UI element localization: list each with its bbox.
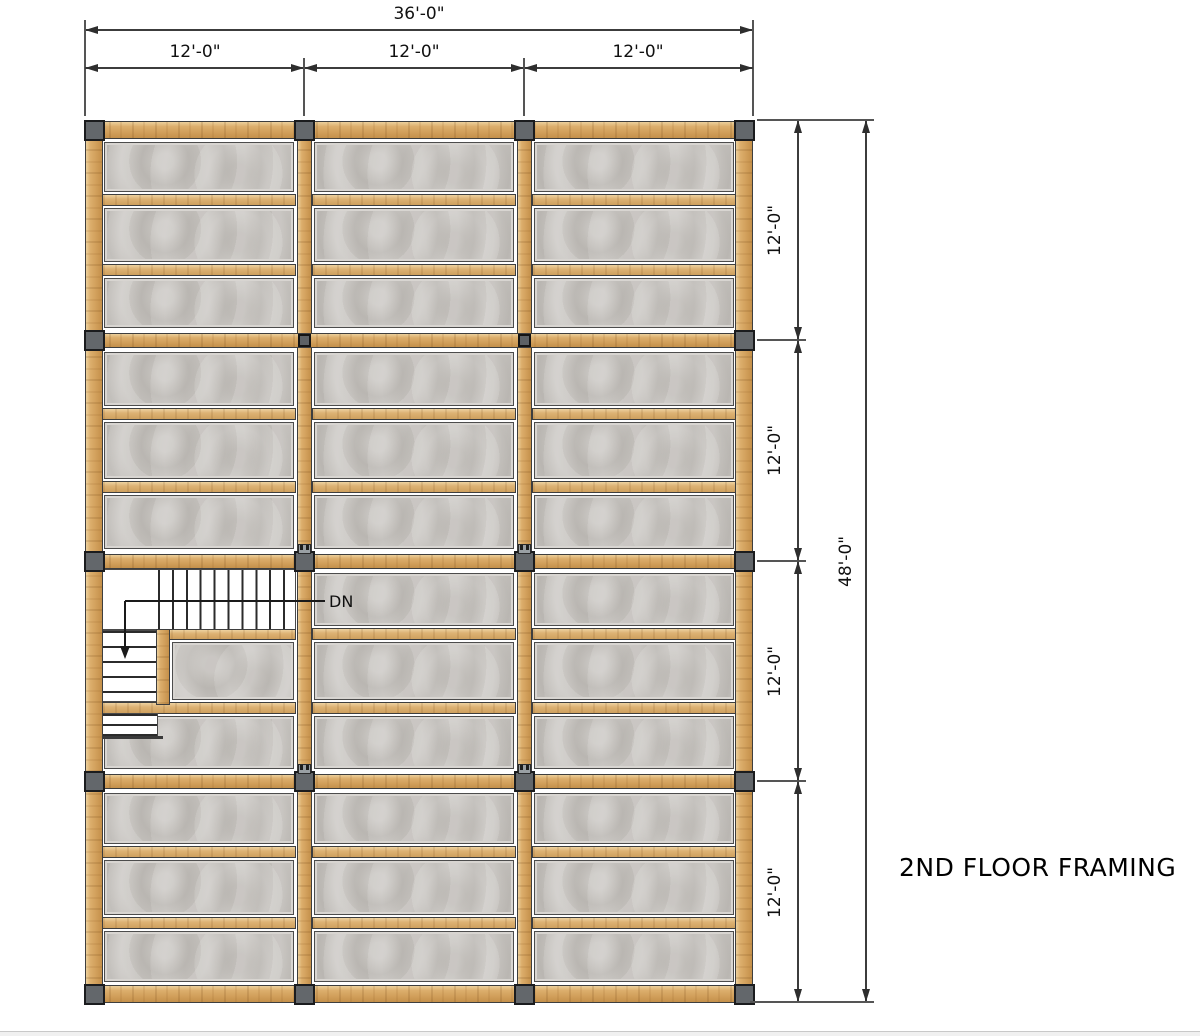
- post-cap-fastener: [306, 545, 309, 550]
- floor-panel: [534, 278, 734, 328]
- dim-bay-height-label-3: 12'-0": [763, 616, 787, 726]
- floor-joist: [312, 481, 516, 493]
- column-post: [84, 120, 105, 141]
- dimension-arrow: [85, 64, 98, 72]
- column-post: [734, 330, 755, 351]
- floor-panel: [314, 142, 514, 192]
- column-post: [84, 551, 105, 572]
- floor-panel: [104, 860, 294, 915]
- stair-walk-line: [124, 601, 126, 646]
- column-post: [294, 120, 315, 141]
- dimension-arrow: [85, 26, 98, 34]
- floor-joist: [532, 481, 736, 493]
- dimension-line: [85, 29, 753, 31]
- floor-joist: [102, 194, 296, 206]
- beam-girder: [85, 774, 753, 789]
- floor-joist: [312, 264, 516, 276]
- floor-panel: [314, 642, 514, 699]
- floor-joist: [532, 702, 736, 714]
- column-post: [514, 120, 535, 141]
- floor-joist: [532, 846, 736, 858]
- post-cap-fastener: [526, 765, 529, 770]
- floor-joist: [312, 702, 516, 714]
- stair-down-arrow: [120, 646, 130, 659]
- floor-panel: [314, 860, 514, 915]
- dimension-line: [85, 67, 753, 69]
- floor-panel: [314, 352, 514, 406]
- dimension-arrow: [862, 120, 870, 133]
- dimension-arrow: [794, 768, 802, 781]
- column-post: [734, 771, 755, 792]
- dimension-arrow: [794, 548, 802, 561]
- column-post: [84, 771, 105, 792]
- floor-panel: [104, 208, 294, 262]
- floor-panel: [104, 142, 294, 192]
- dimension-arrow: [291, 64, 304, 72]
- floor-joist: [532, 628, 736, 640]
- bottom-ui-edge: [0, 1031, 1200, 1036]
- floor-panel: [534, 642, 734, 699]
- dim-bay-width-label-2: 12'-0": [334, 42, 494, 62]
- floor-joist: [102, 702, 296, 714]
- dimension-arrow: [794, 561, 802, 574]
- extension-line: [750, 1001, 874, 1003]
- beam-girder: [85, 554, 753, 569]
- floor-joist: [312, 917, 516, 929]
- floor-panel: [314, 422, 514, 480]
- dim-bay-height-label-4: 12'-0": [763, 837, 787, 947]
- floor-joist: [102, 408, 296, 420]
- floor-joist: [532, 194, 736, 206]
- floor-panel: [172, 642, 294, 699]
- beam-girder: [85, 985, 753, 1003]
- floor-panel: [534, 422, 734, 480]
- floor-panel: [314, 793, 514, 844]
- drawing-title: 2ND FLOOR FRAMING: [899, 853, 1176, 882]
- stair-down-label: DN: [329, 592, 353, 611]
- beam-girder: [85, 333, 753, 348]
- dim-total-height-label: 48'-0": [834, 506, 858, 616]
- floor-joist: [532, 917, 736, 929]
- floor-panel: [534, 573, 734, 626]
- column-post: [734, 120, 755, 141]
- post-cap-fastener: [526, 545, 529, 550]
- floor-panel: [104, 793, 294, 844]
- column-post: [84, 330, 105, 351]
- stair-lower-run: [99, 630, 157, 702]
- floor-joist: [532, 264, 736, 276]
- floor-panel: [534, 208, 734, 262]
- drawing-canvas: 36'-0" 12'-0" 12'-0" 12'-0" 12'-0" 12'-0…: [0, 0, 1200, 1036]
- floor-joist: [102, 917, 296, 929]
- extension-line: [757, 119, 874, 121]
- stair-trimmer-beam: [156, 629, 170, 705]
- stair-stub-run: [99, 713, 158, 737]
- dimension-arrow: [524, 64, 537, 72]
- column-post: [294, 984, 315, 1005]
- post-cap-fastener: [300, 765, 303, 770]
- floor-panel: [534, 495, 734, 549]
- floor-panel: [104, 931, 294, 982]
- floor-panel: [104, 422, 294, 480]
- floor-panel: [104, 352, 294, 406]
- post-cap-fastener: [306, 765, 309, 770]
- dim-bay-width-label-3: 12'-0": [558, 42, 718, 62]
- dimension-arrow: [794, 781, 802, 794]
- floor-panel: [534, 860, 734, 915]
- beam-girder: [85, 121, 753, 139]
- floor-panel: [534, 931, 734, 982]
- floor-panel: [534, 793, 734, 844]
- dim-bay-width-label-1: 12'-0": [115, 42, 275, 62]
- floor-panel: [104, 495, 294, 549]
- dimension-arrow: [740, 64, 753, 72]
- stair-header-joist: [158, 629, 296, 640]
- post-cap-fastener: [520, 545, 523, 550]
- dim-total-width-label: 36'-0": [339, 4, 499, 24]
- floor-joist: [102, 481, 296, 493]
- floor-panel: [314, 278, 514, 328]
- floor-joist: [102, 846, 296, 858]
- floor-panel: [314, 716, 514, 769]
- column-post: [734, 551, 755, 572]
- dimension-arrow: [304, 64, 317, 72]
- post-cap-fastener: [520, 765, 523, 770]
- floor-joist: [312, 628, 516, 640]
- floor-joist: [312, 194, 516, 206]
- column-post: [514, 984, 535, 1005]
- dimension-arrow: [511, 64, 524, 72]
- floor-panel: [314, 931, 514, 982]
- dimension-line: [865, 120, 867, 1002]
- floor-panel: [534, 352, 734, 406]
- dimension-arrow: [794, 327, 802, 340]
- floor-panel: [104, 278, 294, 328]
- dimension-arrow: [794, 120, 802, 133]
- post-cap-fastener: [300, 545, 303, 550]
- dim-bay-height-label-2: 12'-0": [763, 395, 787, 505]
- floor-joist: [532, 408, 736, 420]
- dim-bay-height-label-1: 12'-0": [763, 175, 787, 285]
- column-post: [518, 334, 531, 347]
- column-post: [298, 334, 311, 347]
- floor-panel: [534, 142, 734, 192]
- floor-panel: [314, 208, 514, 262]
- column-post: [84, 984, 105, 1005]
- floor-joist: [312, 846, 516, 858]
- stair-walk-line: [125, 600, 325, 602]
- stair-stub-edge: [99, 736, 163, 739]
- floor-panel: [314, 495, 514, 549]
- floor-joist: [102, 264, 296, 276]
- dimension-arrow: [794, 340, 802, 353]
- floor-joist: [312, 408, 516, 420]
- floor-panel: [534, 716, 734, 769]
